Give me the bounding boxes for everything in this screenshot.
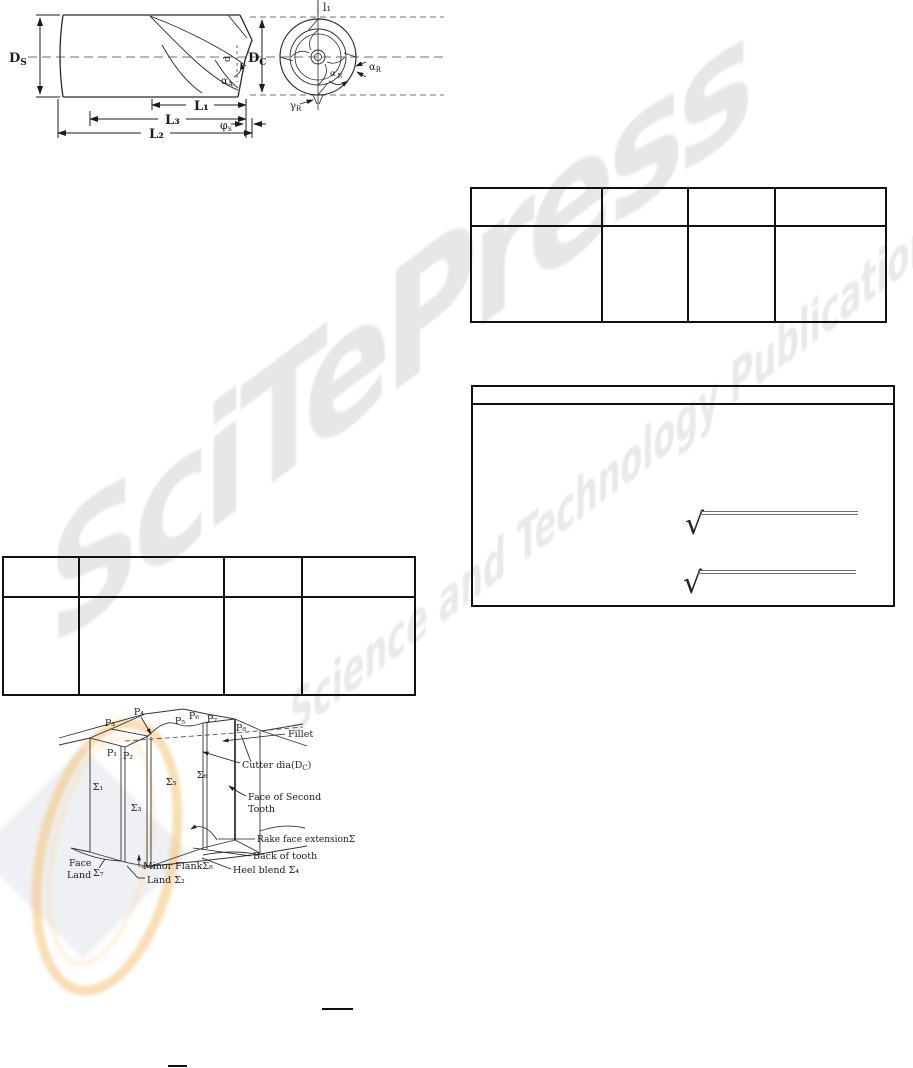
table-cell <box>3 597 79 695</box>
label-shank-diameter: DS <box>9 51 27 68</box>
table-cell <box>775 226 886 322</box>
endmill-drawing: DS DC L₁ L₃ L₂ φs d αA l₁ αR α′R γR <box>0 0 460 150</box>
table-cell <box>471 226 602 322</box>
centerlines <box>28 17 445 95</box>
label-land: Land Σ₂ <box>147 875 185 886</box>
label-sigma3: Σ₃ <box>131 803 142 814</box>
label-minor-flank: Minor FlankΣ₈ <box>143 861 213 872</box>
formula-box: √ √ <box>471 385 895 607</box>
table-cell <box>79 557 224 597</box>
label-phi-s: φs <box>220 119 232 133</box>
table-cell <box>602 188 688 226</box>
label-p2: P₂ <box>123 751 133 762</box>
paper-page: SciTePress Science and Technology Public… <box>0 0 913 1068</box>
label-l3: L₃ <box>165 113 180 128</box>
table-cell <box>3 557 79 597</box>
table-cell <box>224 557 302 597</box>
label-back-of-tooth: Back of tooth <box>253 851 317 862</box>
tooth-labels: P₃ P₄ P₅ P₆ P₇ P₈ P₁ P₂ Σ₁ Σ₃ Σ₅ Σ₆ Fill… <box>67 707 355 886</box>
table-cell <box>79 597 224 695</box>
tooth-dashed-lines <box>125 727 303 741</box>
label-alpha-radial-secondary: α′R <box>330 69 343 80</box>
label-face-land-1: Face <box>69 858 92 869</box>
label-p3: P₃ <box>105 718 115 729</box>
label-face-second-2: Tooth <box>248 804 275 815</box>
table-cell <box>688 226 775 322</box>
sqrt-vinculum <box>698 570 856 574</box>
label-face-second-1: Face of Second <box>248 792 321 803</box>
front-view <box>280 0 366 110</box>
label-alpha-axial: αA <box>221 76 234 88</box>
radical-expression-2: √ <box>683 569 856 599</box>
tooth-geometry-drawing: P₃ P₄ P₅ P₆ P₇ P₈ P₁ P₂ Σ₁ Σ₃ Σ₅ Σ₆ Fill… <box>55 700 355 895</box>
label-p4: P₄ <box>134 707 144 718</box>
label-sigma1: Σ₁ <box>93 782 104 793</box>
table-cell <box>602 226 688 322</box>
label-p5: P₅ <box>175 716 185 727</box>
label-sigma6: Σ₆ <box>197 770 208 781</box>
label-gamma-radial: γR <box>290 101 302 113</box>
label-l2: L₂ <box>149 127 164 142</box>
table-cell <box>471 188 602 226</box>
label-p8: P₈ <box>236 723 246 734</box>
fraction-bar <box>168 1065 187 1067</box>
table-cell <box>688 188 775 226</box>
parameters-table <box>470 187 887 323</box>
table-cell <box>302 557 415 597</box>
label-p1: P₁ <box>107 748 117 759</box>
label-l1-front: l₁ <box>323 1 331 14</box>
label-face-land-sigma: Σ₇ <box>93 868 104 879</box>
fraction-bar <box>322 1008 353 1010</box>
label-face-land-2: Land <box>67 870 91 881</box>
label-cutter-dia: Cutter dia(DC) <box>242 760 311 772</box>
label-l1: L₁ <box>194 99 209 114</box>
label-cutter-diameter: DC <box>248 51 266 68</box>
table-cell <box>224 597 302 695</box>
table-cell <box>302 597 415 695</box>
label-sigma5: Σ₅ <box>166 777 177 788</box>
table-cell <box>775 188 886 226</box>
radical-expression-1: √ <box>685 510 858 540</box>
label-p6: P₆ <box>189 711 199 722</box>
label-alpha-radial: αR <box>369 62 382 74</box>
geometry-table <box>2 556 416 696</box>
label-p7: P₇ <box>207 714 217 725</box>
label-rake-extension: Rake face extensionΣ₉ <box>257 835 355 845</box>
label-heel-blend: Heel blend Σ₄ <box>233 865 299 876</box>
formula-box-header <box>473 387 893 405</box>
label-fillet: Fillet <box>288 729 313 740</box>
label-d-tip: d <box>223 56 233 62</box>
dimension-lines <box>36 15 266 138</box>
sqrt-vinculum <box>700 511 858 515</box>
